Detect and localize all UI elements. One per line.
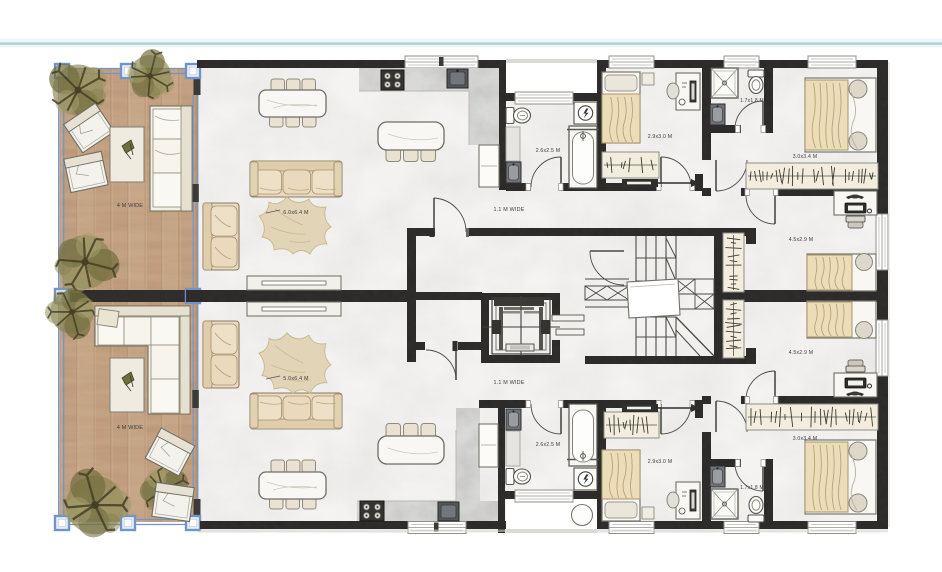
svg-text:4.5x2.9 M: 4.5x2.9 M [789,237,814,243]
svg-text:5.0x6.4 M: 5.0x6.4 M [283,376,309,382]
svg-text:2.6x2.5 M: 2.6x2.5 M [536,442,561,448]
svg-text:2.9x3.0 M: 2.9x3.0 M [648,459,673,465]
svg-text:1.1 M WIDE: 1.1 M WIDE [493,207,524,213]
svg-text:1.7x1.8 M: 1.7x1.8 M [740,485,764,491]
svg-text:1.7x1.8 M: 1.7x1.8 M [740,98,764,104]
svg-text:4 M WIDE: 4 M WIDE [117,203,143,209]
svg-text:2.6x2.5 M: 2.6x2.5 M [536,148,561,154]
svg-text:6.0x6.4 M: 6.0x6.4 M [283,210,309,216]
svg-text:3.0x3.4 M: 3.0x3.4 M [793,436,818,442]
svg-text:1.1 M WIDE: 1.1 M WIDE [493,380,524,386]
svg-text:4 M WIDE: 4 M WIDE [117,425,143,431]
svg-text:2.9x3.0 M: 2.9x3.0 M [648,134,673,140]
svg-text:4.5x2.9 M: 4.5x2.9 M [789,350,814,356]
svg-text:3.0x3.4 M: 3.0x3.4 M [793,154,818,160]
